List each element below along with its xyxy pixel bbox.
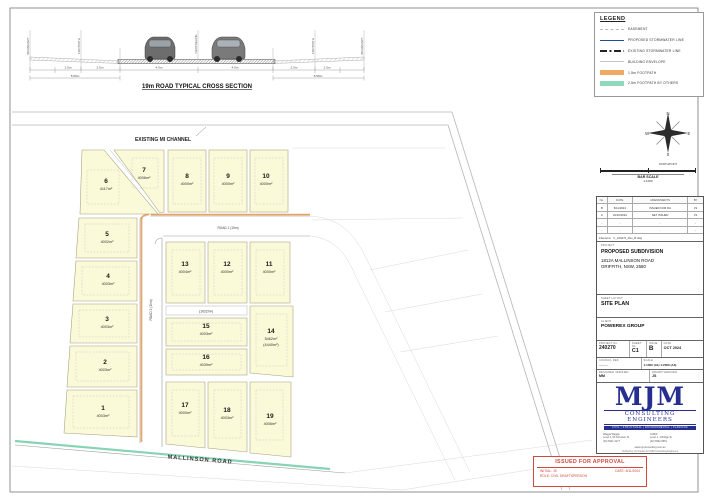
road2-label: ROAD 2 (19m) [149, 299, 153, 320]
svg-text:18: 18 [223, 407, 231, 414]
svg-text:4000m²: 4000m² [260, 182, 274, 186]
svg-text:4003m²: 4003m² [97, 414, 111, 418]
drawn-initials: JS [652, 374, 701, 378]
xsec-label-footpath-right: FOOTPATH [311, 38, 315, 54]
revision-row: -- -- [597, 219, 703, 226]
lot-14: 14 5462m² (4440m²) [250, 306, 293, 377]
scale-fields-row: COUNCIL REF.--------- SCALE1:1000 (A1) 1… [597, 358, 703, 371]
dim-5: 2.5m [291, 66, 298, 70]
svg-text:E: E [688, 131, 691, 136]
carriageway [118, 60, 275, 64]
mallinson-road: MALLINSON ROAD [15, 441, 345, 473]
legend: LEGEND EASEMENT PROPOSED STORMWATER LINE… [594, 12, 704, 97]
lot-12: 12 4000m² [208, 242, 247, 303]
legend-item-easement: EASEMENT [600, 24, 698, 35]
firm-footer: Verified by Col Jordan for MJM Consultin… [622, 450, 678, 453]
svg-text:N: N [666, 111, 669, 116]
svg-text:5462m²: 5462m² [265, 337, 279, 341]
svg-text:4004m²: 4004m² [179, 270, 193, 274]
svg-text:4000m²: 4000m² [179, 411, 193, 415]
svg-text:9: 9 [226, 173, 230, 180]
firm-logo: MJM [615, 385, 685, 409]
lot-4: 4 4003m² [73, 261, 137, 301]
dim-2: 2.5m [97, 66, 104, 70]
firm-website: www.mjmconsulting.com.au [635, 446, 666, 449]
lot-3: 3 4003m² [70, 304, 137, 343]
lot-19: 19 4006m² [250, 382, 291, 457]
dim-total-right: 5.50m [314, 74, 323, 78]
lot-11: 11 4000m² [250, 242, 290, 303]
lot-9: 9 4000m² [209, 150, 247, 212]
drawing-sheet: BOUNDARY FOOTPATH CENTRELINE FOOTPATH BO… [0, 0, 708, 500]
lot-17: 17 4000m² [166, 382, 205, 448]
svg-text:4117m²: 4117m² [100, 187, 113, 191]
xsec-label-boundary-right: BOUNDARY [360, 38, 364, 55]
svg-text:4003m²: 4003m² [102, 282, 116, 286]
dim-6: 1.5m [324, 66, 331, 70]
svg-text:(1022m²): (1022m²) [199, 310, 213, 314]
svg-text:4003m²: 4003m² [200, 332, 214, 336]
svg-text:11: 11 [266, 261, 273, 268]
lot-2: 2 4003m² [67, 346, 137, 387]
svg-text:3: 3 [105, 316, 109, 323]
project-fields-row: PROJECT No.240270 SHEET No.C1 ISSUEB DAT… [597, 341, 703, 357]
svg-text:4039m²: 4039m² [200, 363, 214, 367]
project-label: PROJECT [601, 244, 699, 247]
project-address: 1812A MALLINSON ROAD GRIFFITH, NSW, 2680 [601, 258, 699, 270]
building-envelope-line-icon [600, 61, 624, 62]
reserve-strip: (1022m²) [166, 306, 247, 315]
xsec-label-boundary-left: BOUNDARY [26, 38, 30, 55]
filename-row: Filename: C_240270_Rev_B.dwg [597, 234, 703, 241]
svg-text:(4440m²): (4440m²) [263, 343, 279, 347]
lot-18: 18 4003m² [208, 382, 247, 452]
channel-label: EXISTING MI CHANNEL [135, 137, 191, 143]
firm-addresses: Wagga Wagga: Level 1, 53 Johnston St (02… [603, 433, 697, 444]
svg-text:5: 5 [105, 231, 109, 238]
svg-text:10: 10 [262, 173, 270, 180]
council-ref: --------- [599, 363, 639, 367]
bar-scale-icon [600, 168, 696, 173]
easement-line-icon [600, 29, 624, 30]
svg-text:4006m²: 4006m² [138, 176, 152, 180]
revision-header-row: No. DATE AMENDMENTS BY [597, 197, 703, 204]
northpoint-caption: NORTHPOINT [640, 162, 696, 166]
dim-1: 1.5m [65, 66, 72, 70]
revision-table: No. DATE AMENDMENTS BY B6/11/2024 ISSUED… [597, 197, 703, 242]
designed-initials: MM [599, 374, 647, 378]
svg-text:4006m²: 4006m² [264, 422, 278, 426]
project-number: 240270 [599, 345, 627, 351]
svg-text:4: 4 [106, 273, 110, 280]
existing-stormwater-line-icon [600, 50, 624, 51]
svg-text:1: 1 [101, 405, 105, 412]
personnel-fields-row: DESIGNED VERIFIEDMM DRAWN VERIFIEDJS [597, 370, 703, 383]
firm-disciplines: CIVIL | STRUCTURAL | ENVIRONMENTAL | PLA… [604, 426, 696, 430]
issue: B [649, 345, 659, 352]
legend-item-building-envelope: BUILDING ENVELOPE [600, 56, 698, 67]
compass-rose-icon: N E S W [644, 110, 692, 156]
approval-stamp: ISSUED FOR APPROVAL INITIAL: JS DATE: 6/… [533, 456, 647, 487]
lot-10: 10 4000m² [250, 150, 288, 212]
revision-row: A01/10/2024 SET ISSUEDJS [597, 212, 703, 219]
sheet-section: SHEET LAYOUT SITE PLAN [597, 295, 703, 318]
car-icon [212, 37, 245, 62]
svg-text:14: 14 [267, 328, 275, 335]
legend-item-existing-stormwater: EXISTING STORMWATER LINE [600, 46, 698, 57]
svg-text:4003m²: 4003m² [101, 325, 115, 329]
cross-section-title: 19m ROAD TYPICAL CROSS SECTION [142, 84, 252, 90]
svg-text:4000m²: 4000m² [221, 270, 235, 274]
svg-text:4003m²: 4003m² [99, 368, 113, 372]
lot-8: 8 4000m² [168, 150, 206, 212]
svg-text:4003m²: 4003m² [221, 416, 235, 420]
xsec-label-centreline: CENTRELINE [194, 34, 198, 53]
bar-scale-ratio: 1:1000 [598, 179, 698, 183]
svg-text:4002m²: 4002m² [101, 240, 115, 244]
svg-text:15: 15 [202, 323, 210, 330]
project-section: PROJECT PROPOSED SUBDIVISION 1812A MALLI… [597, 242, 703, 294]
approval-role: ROLE: CIVIL DRAFTSPERSON [534, 474, 646, 478]
footpath-others-swatch-icon [600, 81, 624, 86]
svg-text:13: 13 [181, 261, 189, 268]
legend-item-proposed-stormwater: PROPOSED STORMWATER LINE [600, 35, 698, 46]
footpath-swatch-icon [600, 70, 624, 75]
mallinson-label: MALLINSON ROAD [167, 454, 233, 465]
firm-name: CONSULTING ENGINEERS [604, 410, 696, 425]
date: OCT 2024 [664, 346, 701, 350]
svg-text:4000m²: 4000m² [263, 270, 277, 274]
dim-total-left: 5.50m [71, 74, 80, 78]
revision-row: B6/11/2024 ISSUED FOR DAJS [597, 204, 703, 211]
svg-text:6: 6 [104, 178, 108, 185]
project-name: PROPOSED SUBDIVISION [601, 249, 699, 255]
svg-text:17: 17 [181, 402, 189, 409]
scale-value: 1:1000 (A1) 1:2000 (A3) [644, 363, 701, 367]
sheet-title: SITE PLAN [601, 301, 699, 307]
client-name: POWEREX GROUP [601, 324, 699, 329]
lot-1: 1 4003m² [64, 390, 137, 437]
revision-row: -- -- [597, 227, 703, 234]
svg-text:12: 12 [223, 261, 231, 268]
approval-initial-date: INITIAL: JS DATE: 6/11/2024 [534, 469, 646, 473]
svg-text:W: W [645, 131, 649, 136]
svg-text:2: 2 [103, 359, 107, 366]
north-point: N E S W NORTHPOINT [640, 110, 696, 166]
cross-section: BOUNDARY FOOTPATH CENTRELINE FOOTPATH BO… [26, 30, 364, 90]
lot-13: 13 4004m² [166, 242, 205, 303]
legend-item-footpath-15: 1.5m FOOTPATH [600, 67, 698, 78]
title-block: No. DATE AMENDMENTS BY B6/11/2024 ISSUED… [596, 196, 704, 454]
xsec-label-footpath-left: FOOTPATH [77, 38, 81, 54]
proposed-stormwater-line-icon [600, 40, 624, 41]
client-section: CLIENT POWEREX GROUP [597, 318, 703, 341]
lot-15: 15 4003m² [166, 318, 247, 346]
lot-16: 16 4039m² [166, 349, 247, 375]
sheet-number: C1 [632, 348, 644, 354]
bar-scale: BAR SCALE 1:1000 [598, 168, 698, 183]
svg-text:4000m²: 4000m² [222, 182, 236, 186]
lots: 6 4117m² 7 4006m² 8 4000m² 9 4000m² [64, 150, 293, 457]
lot-5: 5 4002m² [76, 218, 137, 258]
car-icon [145, 37, 175, 62]
dim-3: 4.0m [156, 66, 163, 70]
legend-item-footpath-25: 2.5m FOOTPATH BY OTHERS [600, 78, 698, 89]
svg-text:7: 7 [142, 167, 146, 174]
road1-label: ROAD 1 (19m) [217, 226, 238, 230]
approval-title: ISSUED FOR APPROVAL [537, 459, 643, 468]
svg-text:S: S [667, 152, 670, 156]
dim-4: 4.0m [232, 66, 239, 70]
firm-block: MJM CONSULTING ENGINEERS CIVIL | STRUCTU… [597, 383, 703, 453]
svg-text:16: 16 [202, 354, 210, 361]
svg-text:8: 8 [185, 173, 189, 180]
svg-text:19: 19 [266, 413, 274, 420]
svg-text:4000m²: 4000m² [181, 182, 195, 186]
legend-title: LEGEND [600, 16, 698, 22]
